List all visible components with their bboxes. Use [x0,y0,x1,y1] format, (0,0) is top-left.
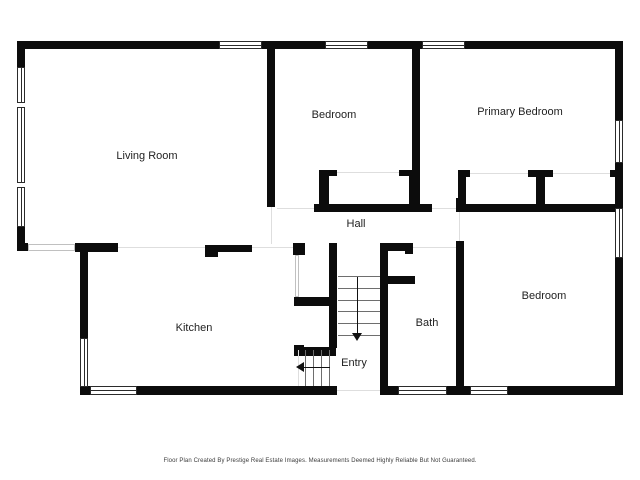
wall-segment [615,258,623,395]
wall-segment [615,41,623,120]
stair-tread [338,323,380,324]
opening-line [271,207,272,244]
room-label-bedroom-top: Bedroom [312,109,357,121]
wall-segment [456,241,464,386]
wall-segment [294,297,336,306]
entry-steps-arrow [296,362,304,372]
wall-segment [368,41,422,49]
window [470,386,508,395]
room-label-bedroom-bottom: Bedroom [522,290,567,302]
wall-segment [17,41,25,67]
window [90,386,137,395]
wall-segment [80,244,88,338]
window [17,107,25,183]
opening-marker [295,255,299,297]
wall-segment [80,386,90,395]
wall-segment [458,170,466,212]
stair-tread [313,350,314,386]
window [219,41,262,49]
opening-line [118,247,205,248]
wall-segment [314,204,432,212]
wall-segment [267,49,275,207]
opening-line [459,212,460,241]
floor-plan-canvas: Living RoomBedroomPrimary BedroomHallKit… [0,0,640,480]
stair-tread [338,311,380,312]
wall-segment [388,276,415,284]
room-label-hall: Hall [347,218,366,230]
stair-tread [329,350,330,386]
room-label-kitchen: Kitchen [176,322,213,334]
window [17,67,25,103]
window [17,187,25,227]
stair-tread [321,350,322,386]
stair-tread [338,300,380,301]
wall-segment [610,170,623,177]
window [422,41,465,49]
opening-line [337,390,380,391]
wall-segment [262,41,325,49]
wall-segment [17,243,28,251]
entry-steps-arrow-line [303,367,330,368]
opening-line [470,173,528,174]
stair-tread [338,288,380,289]
window [615,120,623,163]
wall-segment [405,243,413,254]
disclaimer-text: Floor Plan Created By Prestige Real Esta… [0,458,640,464]
opening-line [553,173,610,174]
wall-segment [329,243,337,348]
window [325,41,368,49]
window [398,386,447,395]
room-label-primary-bedroom: Primary Bedroom [477,106,563,118]
window [615,208,623,258]
window [80,338,88,387]
wall-segment [205,245,218,257]
wall-segment [218,245,252,252]
room-label-living-room: Living Room [116,150,177,162]
stair-tread [305,350,306,386]
wall-segment [447,386,470,395]
stair-tread [338,276,380,277]
opening-line [277,208,314,209]
opening-line [252,247,293,248]
stairs-down-arrow [352,333,362,341]
opening-marker [28,244,75,251]
room-label-entry: Entry [341,357,367,369]
opening-line [413,247,456,248]
wall-segment [137,386,337,395]
wall-segment [293,243,305,255]
opening-line [337,172,399,173]
wall-segment [536,170,545,212]
room-label-bath: Bath [416,317,439,329]
stairs-down-arrow-line [357,277,358,334]
wall-segment [17,41,219,49]
wall-segment [508,386,623,395]
wall-segment [465,41,623,49]
opening-line [432,208,456,209]
wall-segment [380,243,388,391]
